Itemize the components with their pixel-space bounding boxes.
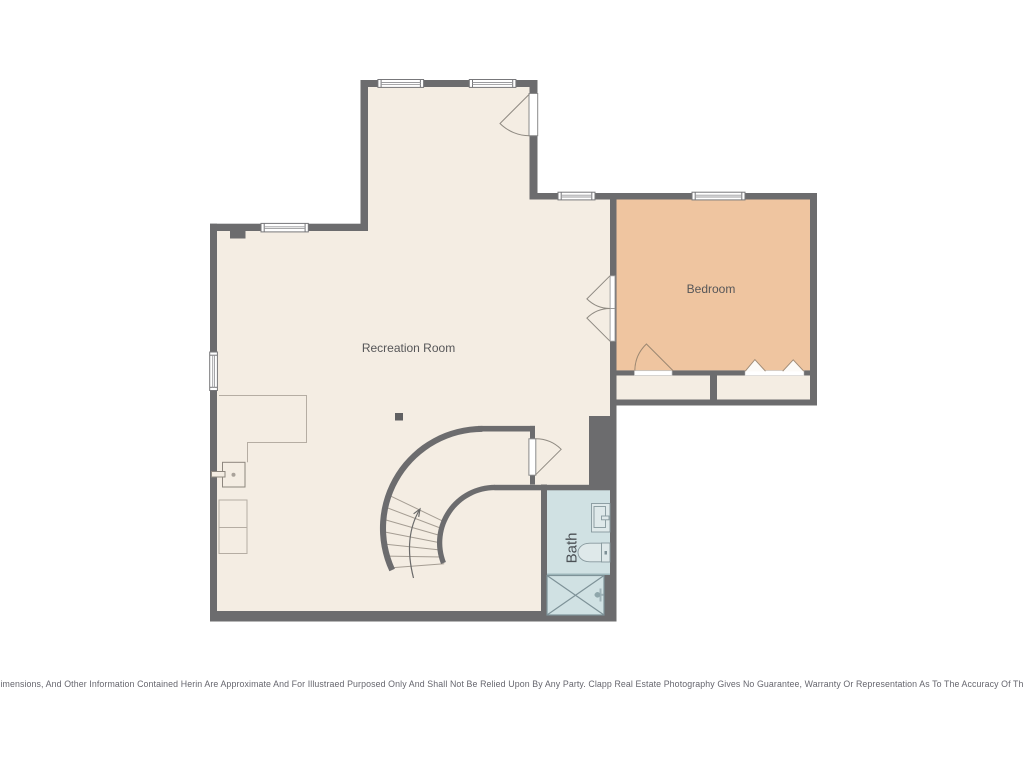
svg-text:Bath: Bath: [564, 533, 581, 564]
svg-text:Bedroom: Bedroom: [687, 282, 736, 296]
svg-text:Dimensions, And Other Informat: Dimensions, And Other Information Contai…: [0, 679, 1024, 689]
svg-text:Recreation Room: Recreation Room: [362, 341, 455, 355]
